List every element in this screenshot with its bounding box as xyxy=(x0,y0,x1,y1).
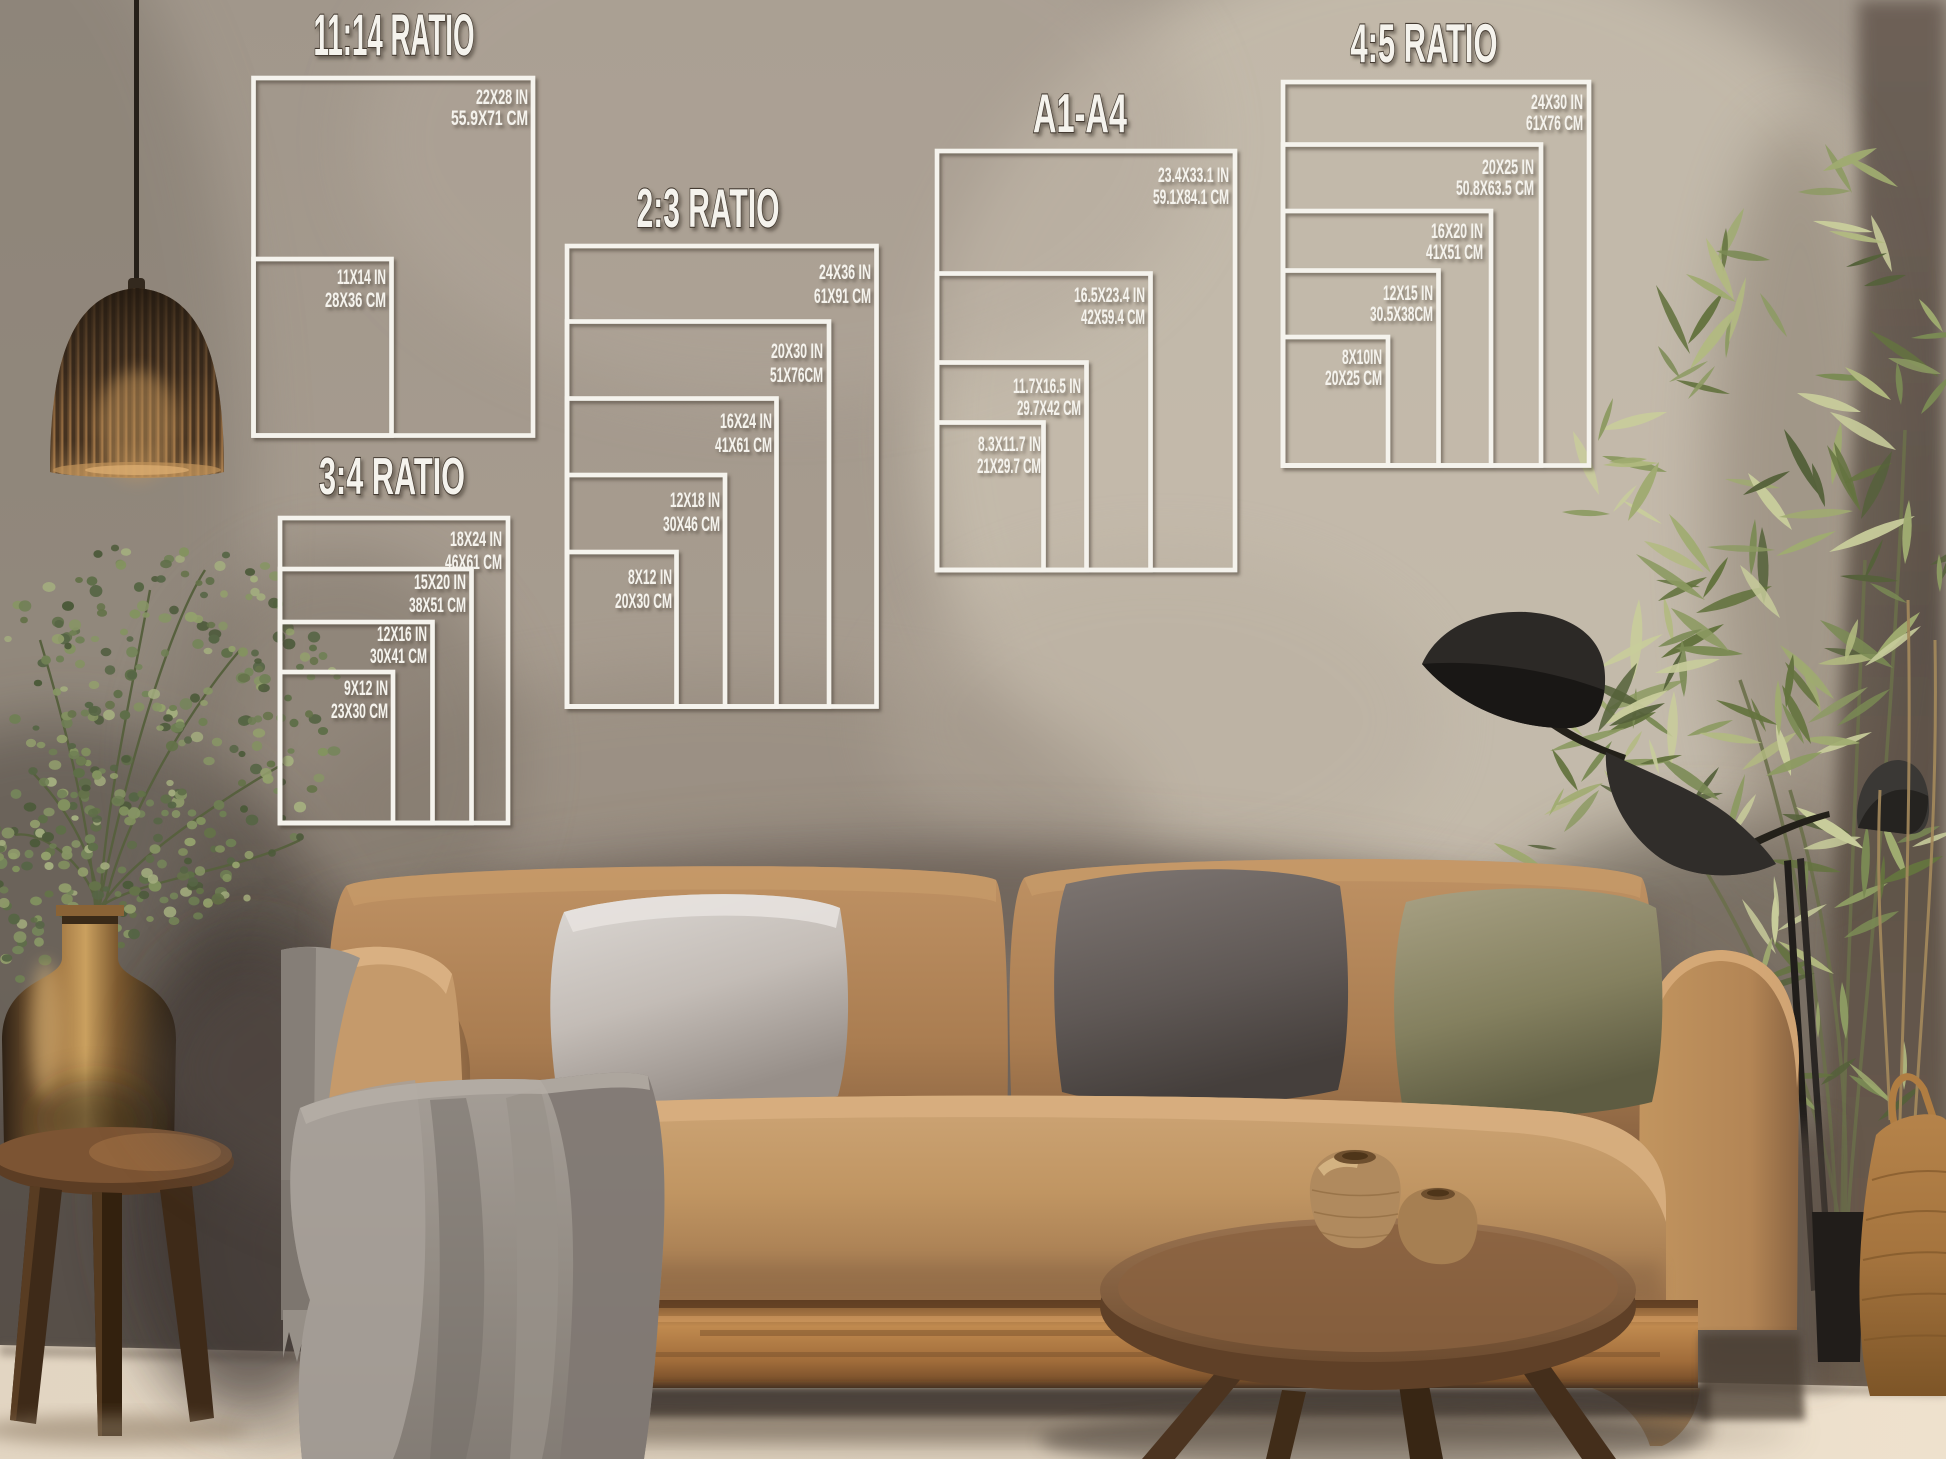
svg-text:23.4X33.1 IN: 23.4X33.1 IN xyxy=(1158,163,1229,187)
svg-text:30X41 CM: 30X41 CM xyxy=(370,644,427,668)
svg-text:24X36 IN: 24X36 IN xyxy=(819,260,871,284)
svg-text:61X91 CM: 61X91 CM xyxy=(814,284,871,308)
svg-text:30.5X38CM: 30.5X38CM xyxy=(1370,302,1433,326)
svg-text:12X16 IN: 12X16 IN xyxy=(377,622,427,646)
svg-text:29.7X42 CM: 29.7X42 CM xyxy=(1017,396,1081,420)
svg-text:18X24 IN: 18X24 IN xyxy=(450,527,502,551)
svg-text:21X29.7 CM: 21X29.7 CM xyxy=(977,454,1041,478)
svg-text:28X36 CM: 28X36 CM xyxy=(325,288,386,312)
svg-text:15X20 IN: 15X20 IN xyxy=(414,570,466,594)
svg-text:50.8X63.5 CM: 50.8X63.5 CM xyxy=(1456,176,1534,200)
svg-text:42X59.4 CM: 42X59.4 CM xyxy=(1081,305,1145,329)
svg-text:20X30 IN: 20X30 IN xyxy=(771,339,823,363)
svg-text:8.3X11.7 IN: 8.3X11.7 IN xyxy=(978,432,1041,456)
svg-text:61X76 CM: 61X76 CM xyxy=(1526,111,1583,135)
svg-text:4:5 RATIO: 4:5 RATIO xyxy=(1351,12,1498,74)
svg-text:51X76CM: 51X76CM xyxy=(770,363,823,387)
svg-text:2:3 RATIO: 2:3 RATIO xyxy=(637,177,780,239)
svg-text:16.5X23.4 IN: 16.5X23.4 IN xyxy=(1074,283,1145,307)
svg-text:23X30 CM: 23X30 CM xyxy=(331,699,388,723)
svg-text:A1-A4: A1-A4 xyxy=(1033,82,1127,144)
svg-text:16X24 IN: 16X24 IN xyxy=(720,409,772,433)
svg-text:11.7X16.5 IN: 11.7X16.5 IN xyxy=(1013,374,1081,398)
svg-text:41X61 CM: 41X61 CM xyxy=(715,433,772,457)
svg-text:41X51 CM: 41X51 CM xyxy=(1426,240,1483,264)
svg-text:20X25 CM: 20X25 CM xyxy=(1325,366,1382,390)
svg-text:8X12 IN: 8X12 IN xyxy=(628,565,672,589)
svg-text:3:4 RATIO: 3:4 RATIO xyxy=(319,448,465,506)
svg-text:59.1X84.1 CM: 59.1X84.1 CM xyxy=(1153,185,1229,209)
svg-text:30X46 CM: 30X46 CM xyxy=(663,512,720,536)
svg-text:55.9X71 CM: 55.9X71 CM xyxy=(451,106,528,130)
svg-text:11:14 RATIO: 11:14 RATIO xyxy=(314,3,475,68)
svg-text:9X12 IN: 9X12 IN xyxy=(344,676,388,700)
svg-text:11X14 IN: 11X14 IN xyxy=(337,265,386,289)
svg-text:12X18 IN: 12X18 IN xyxy=(670,488,720,512)
svg-text:38X51 CM: 38X51 CM xyxy=(409,593,466,617)
svg-text:20X30 CM: 20X30 CM xyxy=(615,589,672,613)
